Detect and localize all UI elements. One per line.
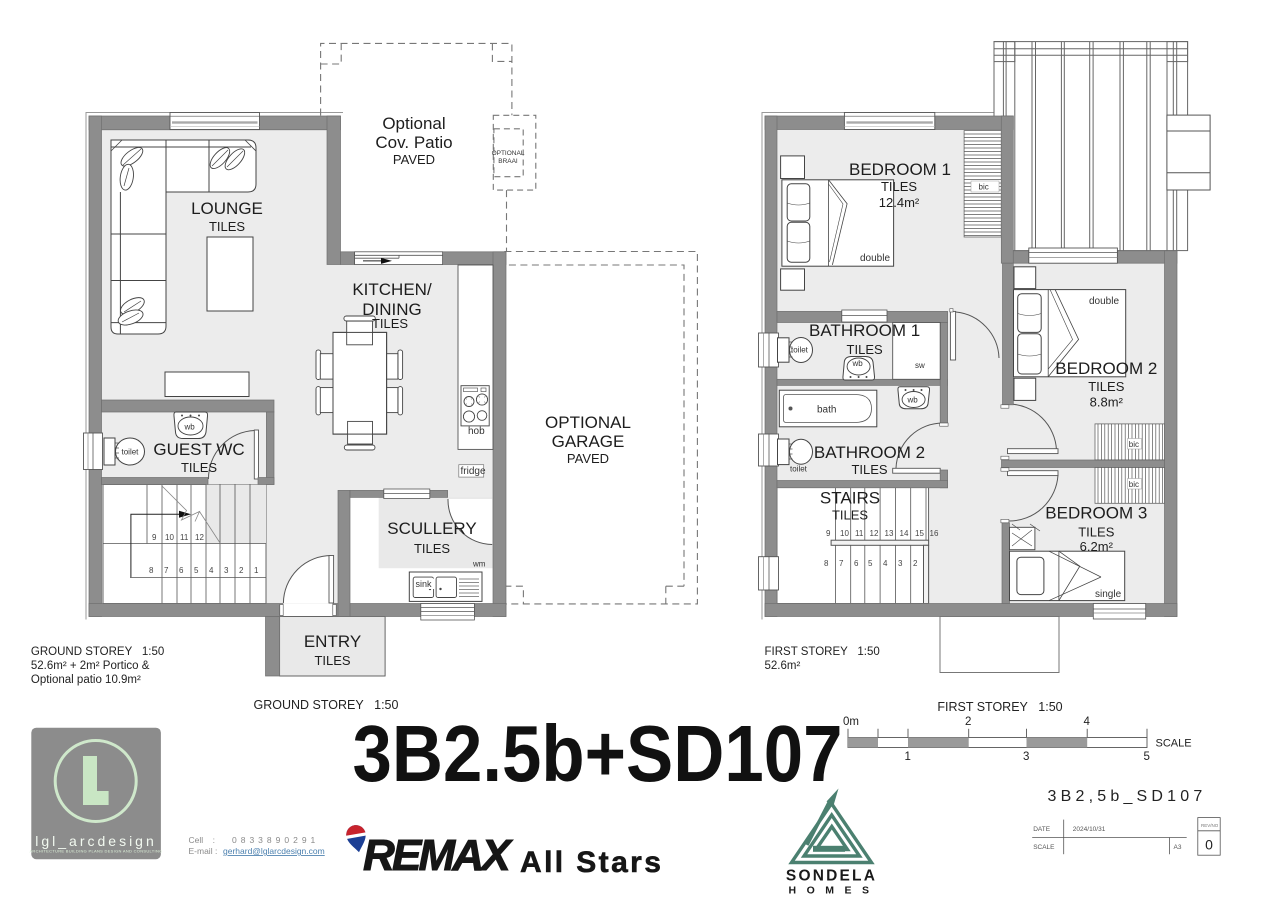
- svg-text:All Stars: All Stars: [520, 846, 663, 879]
- svg-text:2: 2: [239, 566, 244, 575]
- svg-text:6.2m²: 6.2m²: [1080, 539, 1114, 554]
- svg-text:Cov. Patio: Cov. Patio: [375, 133, 452, 152]
- svg-text:0833890291: 0833890291: [232, 835, 319, 845]
- svg-text:hob: hob: [468, 426, 485, 437]
- svg-text:gerhard@lglarcdesign.com: gerhard@lglarcdesign.com: [223, 846, 325, 856]
- svg-text:wb: wb: [184, 423, 196, 432]
- svg-text:SCULLERY: SCULLERY: [387, 519, 476, 538]
- svg-text:TILES: TILES: [1078, 525, 1114, 540]
- svg-text:REV/NO: REV/NO: [1201, 823, 1219, 828]
- svg-text:TILES: TILES: [881, 179, 917, 194]
- svg-text:SONDELA: SONDELA: [786, 868, 877, 885]
- svg-text:wb: wb: [852, 359, 864, 368]
- svg-text:3: 3: [1023, 751, 1029, 763]
- svg-text:1: 1: [254, 566, 259, 575]
- svg-text:3B2,5b_SD107: 3B2,5b_SD107: [1048, 788, 1207, 805]
- svg-text:BRAAI: BRAAI: [498, 158, 518, 165]
- svg-text:13: 13: [885, 529, 894, 538]
- svg-text:52.6m²: 52.6m²: [765, 660, 801, 672]
- svg-text:2: 2: [913, 559, 918, 568]
- svg-text:TILES: TILES: [414, 541, 450, 556]
- svg-text:6: 6: [179, 566, 184, 575]
- svg-text:KITCHEN/: KITCHEN/: [352, 280, 432, 299]
- svg-text:GUEST WC: GUEST WC: [153, 440, 244, 459]
- svg-text:wb: wb: [907, 396, 919, 405]
- svg-text:9: 9: [826, 529, 831, 538]
- svg-text:4: 4: [883, 559, 888, 568]
- svg-text:BATHROOM 2: BATHROOM 2: [814, 443, 925, 462]
- svg-text:2: 2: [965, 716, 971, 728]
- svg-text:bath: bath: [817, 405, 836, 416]
- svg-text:12: 12: [195, 533, 204, 542]
- svg-text:15: 15: [915, 529, 924, 538]
- svg-text:0m: 0m: [843, 716, 859, 728]
- svg-text:8.8m²: 8.8m²: [1090, 395, 1124, 410]
- svg-text:STAIRS: STAIRS: [820, 489, 880, 508]
- svg-text:TILES: TILES: [181, 460, 217, 475]
- svg-text:LOUNGE: LOUNGE: [191, 199, 263, 218]
- svg-text:TILES: TILES: [1088, 379, 1124, 394]
- svg-text:0: 0: [1205, 837, 1213, 853]
- svg-text:OPTIONAL: OPTIONAL: [492, 150, 525, 157]
- svg-text:10: 10: [840, 529, 849, 538]
- svg-text:52.6m² + 2m² Portico &: 52.6m² + 2m² Portico &: [31, 660, 150, 672]
- svg-text:TILES: TILES: [372, 316, 408, 331]
- svg-text:HOMES: HOMES: [788, 885, 879, 897]
- svg-text:14: 14: [900, 529, 909, 538]
- svg-text:TILES: TILES: [832, 508, 868, 523]
- svg-text:ARCHITECTURE BUILDING PLANS DE: ARCHITECTURE BUILDING PLANS DESIGN AND C…: [29, 849, 162, 854]
- svg-text:TILES: TILES: [847, 342, 883, 357]
- svg-text:sink: sink: [416, 579, 433, 589]
- svg-text:toilet: toilet: [790, 465, 808, 474]
- svg-text:Optional patio 10.9m²: Optional patio 10.9m²: [31, 674, 141, 686]
- svg-text:11: 11: [180, 533, 189, 542]
- svg-text:bic: bic: [1129, 480, 1139, 489]
- svg-text:3B2.5b+SD107: 3B2.5b+SD107: [353, 709, 843, 798]
- svg-text:16: 16: [930, 529, 939, 538]
- svg-text:sw: sw: [915, 361, 925, 370]
- svg-text:TILES: TILES: [851, 462, 887, 477]
- svg-text:7: 7: [839, 559, 844, 568]
- svg-text:SCALE: SCALE: [1156, 738, 1192, 750]
- svg-text:FIRST STOREY 1:50: FIRST STOREY 1:50: [937, 700, 1062, 714]
- svg-text:single: single: [1095, 589, 1122, 600]
- svg-text:Optional: Optional: [382, 114, 445, 133]
- svg-text:REMAX: REMAX: [363, 831, 513, 880]
- svg-text:GARAGE: GARAGE: [552, 432, 625, 451]
- svg-text:OPTIONAL: OPTIONAL: [545, 413, 631, 432]
- svg-text:FIRST STOREY 1:50: FIRST STOREY 1:50: [765, 646, 880, 658]
- svg-text:9: 9: [152, 533, 157, 542]
- svg-text:12: 12: [870, 529, 879, 538]
- svg-text:TILES: TILES: [314, 653, 350, 668]
- svg-text:8: 8: [149, 566, 154, 575]
- svg-text:5: 5: [194, 566, 199, 575]
- svg-text:ENTRY: ENTRY: [304, 632, 361, 651]
- svg-text:bic: bic: [979, 183, 989, 192]
- svg-text:10: 10: [165, 533, 174, 542]
- svg-text:toilet: toilet: [122, 448, 140, 457]
- svg-text:SCALE: SCALE: [1033, 844, 1055, 851]
- svg-text:6: 6: [854, 559, 859, 568]
- svg-text:8: 8: [824, 559, 829, 568]
- svg-text:TILES: TILES: [209, 219, 245, 234]
- svg-text:4: 4: [209, 566, 214, 575]
- svg-text:double: double: [1089, 296, 1119, 307]
- svg-text:BEDROOM 2: BEDROOM 2: [1055, 359, 1157, 378]
- svg-text:4: 4: [1084, 716, 1091, 728]
- svg-text:wm: wm: [472, 560, 486, 569]
- svg-text:1: 1: [905, 751, 911, 763]
- svg-text:5: 5: [868, 559, 873, 568]
- svg-text:11: 11: [855, 529, 864, 538]
- svg-text:2024/10/31: 2024/10/31: [1073, 826, 1106, 833]
- svg-text:bic: bic: [1129, 440, 1139, 449]
- svg-text:7: 7: [164, 566, 169, 575]
- svg-text:3: 3: [224, 566, 229, 575]
- svg-text:double: double: [860, 253, 890, 264]
- svg-text:BEDROOM 3: BEDROOM 3: [1045, 504, 1147, 523]
- svg-text:Cell :: Cell :: [189, 835, 215, 845]
- svg-text:GROUND STOREY 1:50: GROUND STOREY 1:50: [31, 646, 164, 658]
- svg-text:5: 5: [1144, 751, 1150, 763]
- svg-text:fridge: fridge: [461, 466, 486, 477]
- svg-text:3: 3: [898, 559, 903, 568]
- svg-text:BATHROOM 1: BATHROOM 1: [809, 321, 920, 340]
- svg-text:BEDROOM 1: BEDROOM 1: [849, 160, 951, 179]
- svg-text:A3: A3: [1174, 844, 1182, 851]
- svg-text:PAVED: PAVED: [567, 451, 609, 466]
- svg-text:lgl_arcdesign: lgl_arcdesign: [35, 833, 157, 849]
- svg-text:12.4m²: 12.4m²: [879, 195, 920, 210]
- svg-text:DATE: DATE: [1033, 826, 1051, 833]
- svg-text:toilet: toilet: [791, 346, 809, 355]
- svg-text:E-mail :: E-mail :: [189, 846, 218, 856]
- svg-text:PAVED: PAVED: [393, 152, 435, 167]
